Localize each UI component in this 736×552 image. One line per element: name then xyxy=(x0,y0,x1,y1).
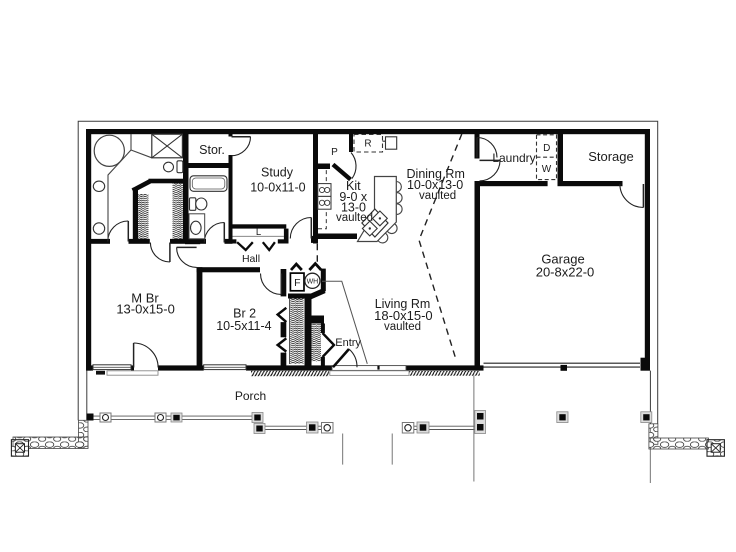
svg-text:10-0x11-0: 10-0x11-0 xyxy=(250,181,305,195)
svg-text:Hall: Hall xyxy=(242,253,260,265)
svg-text:Study: Study xyxy=(261,166,294,180)
svg-text:Laundry: Laundry xyxy=(492,151,535,165)
svg-text:W: W xyxy=(542,164,552,175)
svg-text:WH: WH xyxy=(307,278,319,285)
svg-text:vaulted: vaulted xyxy=(336,212,373,224)
svg-text:20-8x22-0: 20-8x22-0 xyxy=(536,264,595,279)
svg-text:F: F xyxy=(294,277,300,289)
svg-text:13-0x15-0: 13-0x15-0 xyxy=(116,301,175,316)
svg-text:Storage: Storage xyxy=(588,149,634,164)
svg-text:vaulted: vaulted xyxy=(419,190,456,202)
svg-text:Porch: Porch xyxy=(235,389,266,403)
svg-text:P: P xyxy=(331,147,338,158)
svg-text:Entry: Entry xyxy=(335,337,361,349)
svg-text:D: D xyxy=(543,143,550,154)
svg-text:vaulted: vaulted xyxy=(384,321,421,333)
svg-text:10-5x11-4: 10-5x11-4 xyxy=(216,319,271,333)
svg-text:R: R xyxy=(364,138,371,149)
svg-text:L: L xyxy=(256,227,261,238)
svg-text:Stor.: Stor. xyxy=(199,143,225,157)
